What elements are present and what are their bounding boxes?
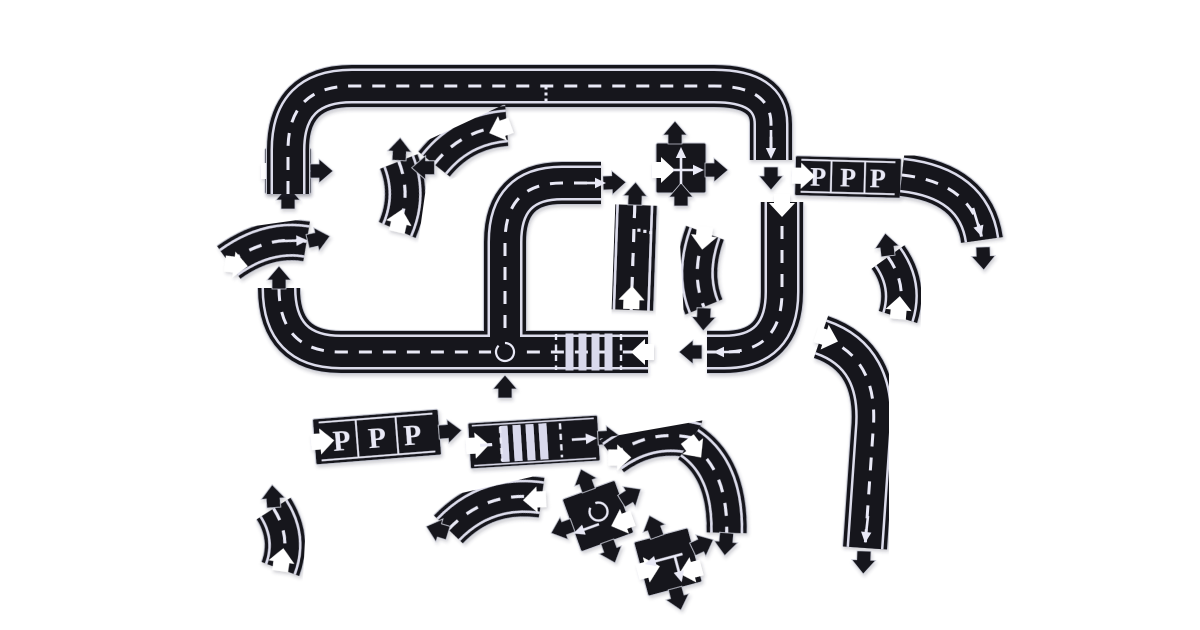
- short-curve-piece-bottom-left: [256, 483, 300, 573]
- parking-letter: P: [870, 164, 887, 193]
- wide-curve-piece: [417, 482, 554, 549]
- curve-from-parking: [902, 175, 996, 270]
- curve-piece-upper-left: [375, 135, 425, 235]
- main-track-roundabout-crosswalk: [267, 170, 654, 398]
- intersection-piece-top-right: [652, 121, 728, 206]
- parking-letter: P: [402, 419, 422, 452]
- short-curve-piece-right: [873, 232, 912, 320]
- long-curve-track-right: [812, 322, 876, 574]
- s-curve-piece: [686, 224, 724, 333]
- product-photo-toy-road-set: PPPPPP: [0, 0, 1200, 630]
- straight-road-piece: [618, 182, 654, 311]
- parking-letter: P: [332, 425, 352, 458]
- toy-road-pieces-canvas: PPPPPP: [0, 0, 1200, 630]
- parking-letter: P: [840, 163, 857, 192]
- crosswalk-piece: [465, 414, 623, 469]
- parking-strip-bottom: PPP: [309, 407, 463, 465]
- parking-letter: P: [367, 422, 387, 455]
- parking-strip-top: PPP: [791, 156, 901, 199]
